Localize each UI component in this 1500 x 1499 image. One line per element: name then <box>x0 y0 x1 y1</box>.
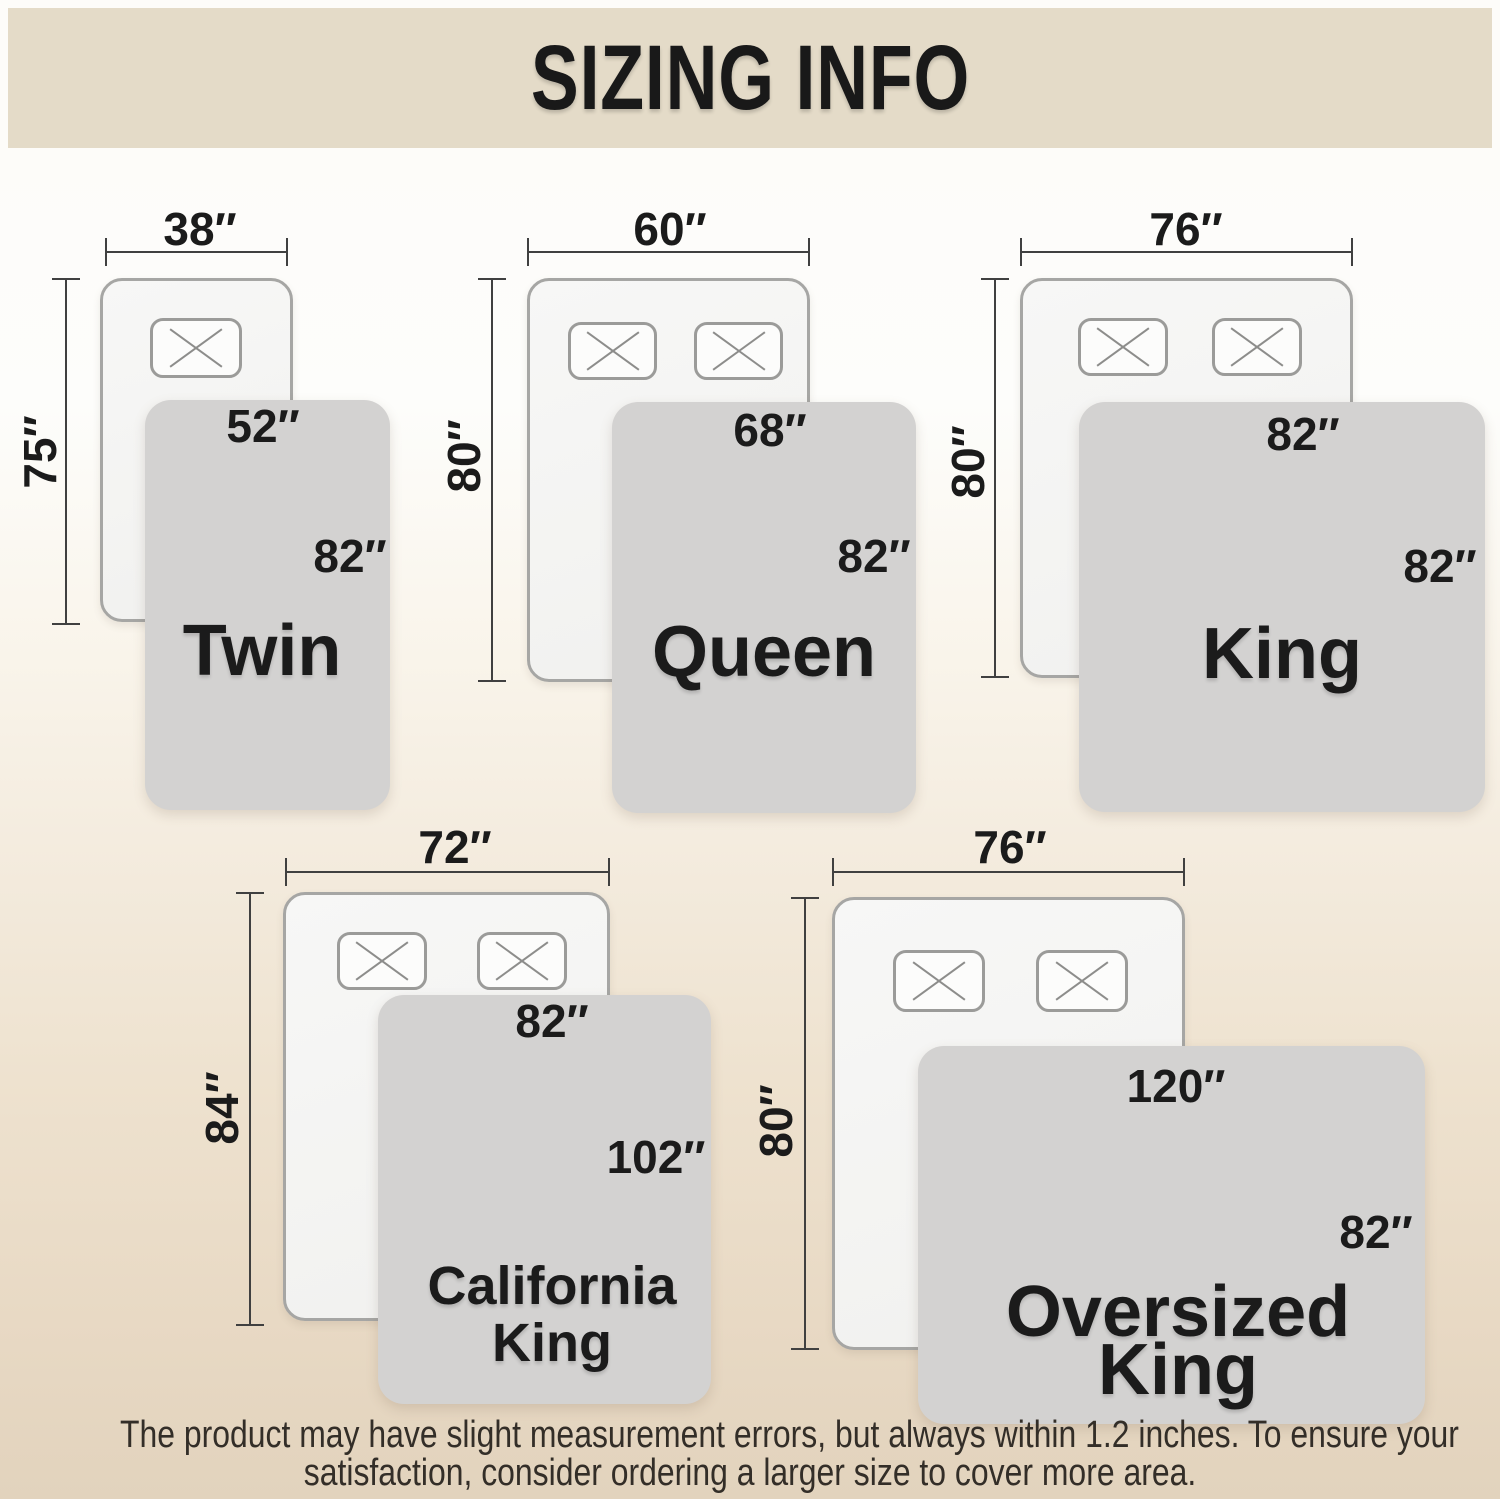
pillow-icon <box>893 950 985 1012</box>
sizing-info-graphic: SIZING INFO 38″ 75″ 52″ 82″ Twin 60″ 80″… <box>0 0 1500 1499</box>
diagram-oversized-king: 76″ 80″ 120″ 82″ Oversized King <box>0 0 1500 1499</box>
length-dimension-line <box>804 897 806 1350</box>
bed-length-label: 80″ <box>753 1084 799 1157</box>
blanket-length-label: 82″ <box>1339 1209 1412 1255</box>
disclaimer-line-1: The product may have slight measurement … <box>120 1416 1380 1454</box>
bed-width-label: 76″ <box>973 824 1046 870</box>
disclaimer-line-2: satisfaction, consider ordering a larger… <box>120 1454 1380 1492</box>
pillow-icon <box>1036 950 1128 1012</box>
blanket-width-label: 120″ <box>1127 1063 1226 1109</box>
size-name-line2: King <box>1098 1334 1258 1406</box>
